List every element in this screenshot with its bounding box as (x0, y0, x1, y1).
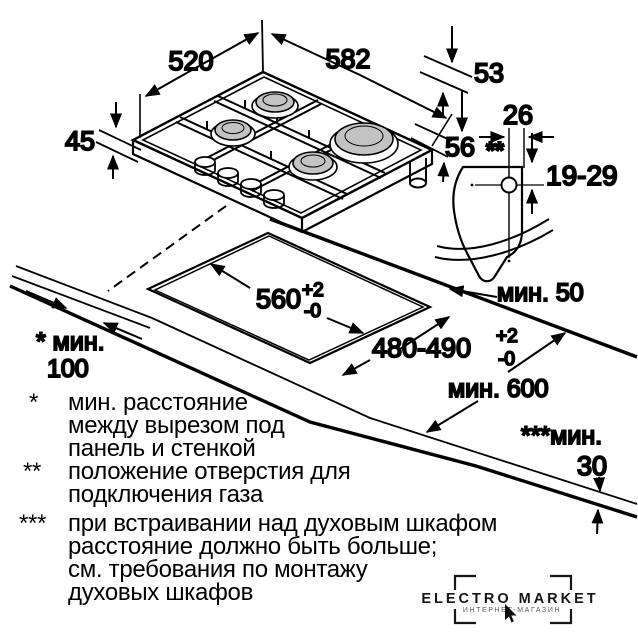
burner-front (289, 152, 337, 180)
burner-left (211, 120, 255, 146)
dim-26-label: 26 (503, 100, 533, 130)
cutout-depth-tol-minus: -0 (498, 349, 515, 370)
watermark: ELECTRO MARKET ИНТЕРНЕТ-МАГАЗИН (421, 576, 598, 623)
watermark-title: ELECTRO MARKET (421, 591, 598, 607)
cutout-depth-tol-plus: +2 (496, 326, 518, 347)
footnote-marker: * (29, 389, 38, 416)
drawing-primitive (241, 179, 261, 189)
min-oven-value: 30 (577, 451, 607, 481)
min-side-label: * мин. (36, 328, 105, 356)
drawing-primitive (410, 179, 426, 188)
footnote-marker: *** (19, 510, 46, 537)
min-back-label: мин. 50 (497, 279, 584, 307)
centerline-dot-left (471, 184, 474, 187)
drawing-primitive (218, 168, 238, 178)
dim-45-ext-lines (96, 130, 141, 162)
dim-53-ext-lines (420, 56, 472, 93)
gas-hole (502, 178, 517, 193)
cutout-width-tol-minus: -0 (304, 301, 321, 322)
drawing-primitive (335, 123, 393, 155)
dim-480-490-arrow2 (343, 360, 370, 375)
drawing-primitive (264, 190, 284, 200)
footnote-marker: ** (23, 458, 41, 485)
drawing-primitive (256, 92, 294, 112)
footnotes: * мин. расстояние между вырезом под пане… (19, 389, 497, 606)
footnote-line: духовых шкафов (68, 579, 253, 606)
min-oven-label: ***мин. (521, 422, 602, 450)
footnote-line: подключения газа (68, 481, 264, 508)
dim-582-line2 (360, 75, 446, 118)
dim-582-label: 582 (325, 44, 370, 74)
dim-min600-arrow-down (427, 401, 478, 432)
burner-wok (330, 123, 398, 163)
cutout-depth-label: 480-490 (372, 333, 471, 363)
cutout-width-label: 560 (256, 284, 301, 314)
installation-diagram: 520 582 53 45 56 26 ** 19-29 (0, 0, 638, 640)
dim-45-label: 45 (65, 126, 95, 156)
installation-diagram-page: 520 582 53 45 56 26 ** 19-29 (0, 0, 638, 640)
drawing-primitive (195, 157, 215, 167)
dim-520-label: 520 (168, 46, 213, 76)
dim-56-arrow-up (443, 163, 444, 182)
dim-53-label: 53 (474, 58, 504, 88)
dim-min30-arrow-up (597, 510, 598, 534)
min-worktop-depth-label: мин. 600 (448, 375, 549, 403)
cutout-width-tol-plus: +2 (302, 280, 324, 301)
hob-foot (410, 158, 426, 188)
centerline-dot-bottom (508, 260, 511, 263)
gas-marker-label: ** (486, 137, 504, 163)
min-side-value: 100 (47, 355, 89, 383)
hob-isometric-view (133, 72, 432, 232)
burner-back (252, 92, 298, 118)
apex-extension-line (262, 20, 263, 72)
dim-56-label: 56 (445, 132, 475, 162)
dim-19-29-label: 19-29 (546, 160, 618, 191)
